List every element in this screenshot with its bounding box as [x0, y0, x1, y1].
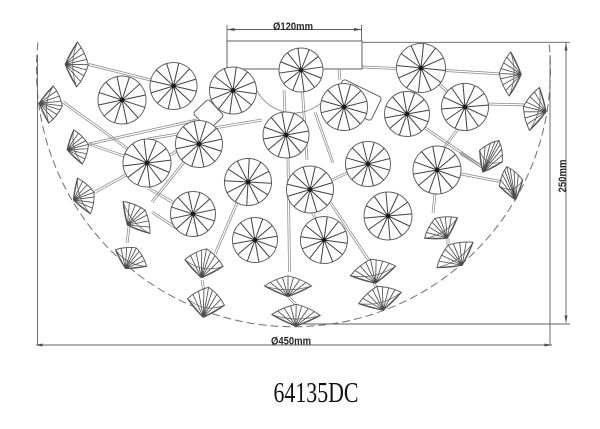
svg-text:250mm: 250mm — [557, 159, 569, 192]
svg-text:64135DC: 64135DC — [274, 377, 359, 409]
svg-text:Ø120mm: Ø120mm — [273, 21, 313, 33]
svg-text:Ø450mm: Ø450mm — [271, 336, 311, 348]
